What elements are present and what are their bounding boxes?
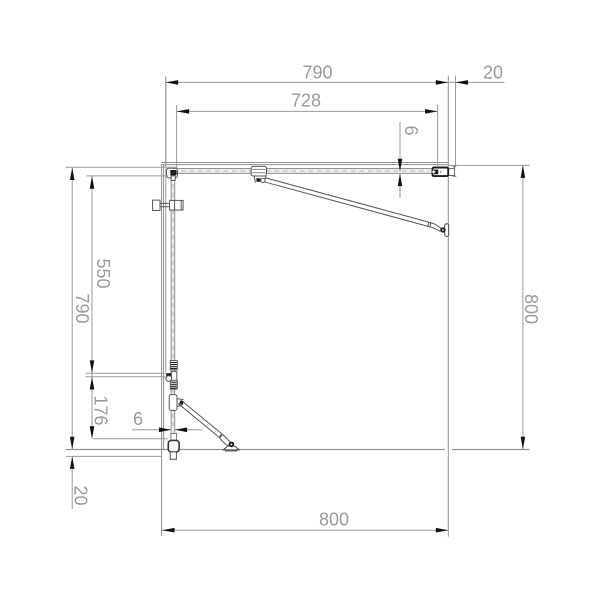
svg-text:6: 6 [133, 409, 143, 429]
svg-text:800: 800 [521, 294, 541, 324]
svg-text:550: 550 [93, 258, 113, 288]
svg-text:728: 728 [291, 91, 321, 111]
svg-text:800: 800 [319, 510, 349, 530]
svg-text:176: 176 [91, 395, 111, 425]
svg-text:20: 20 [483, 63, 503, 83]
svg-text:790: 790 [72, 293, 92, 323]
svg-text:6: 6 [401, 125, 421, 135]
svg-text:20: 20 [70, 485, 90, 505]
svg-text:790: 790 [302, 63, 332, 83]
